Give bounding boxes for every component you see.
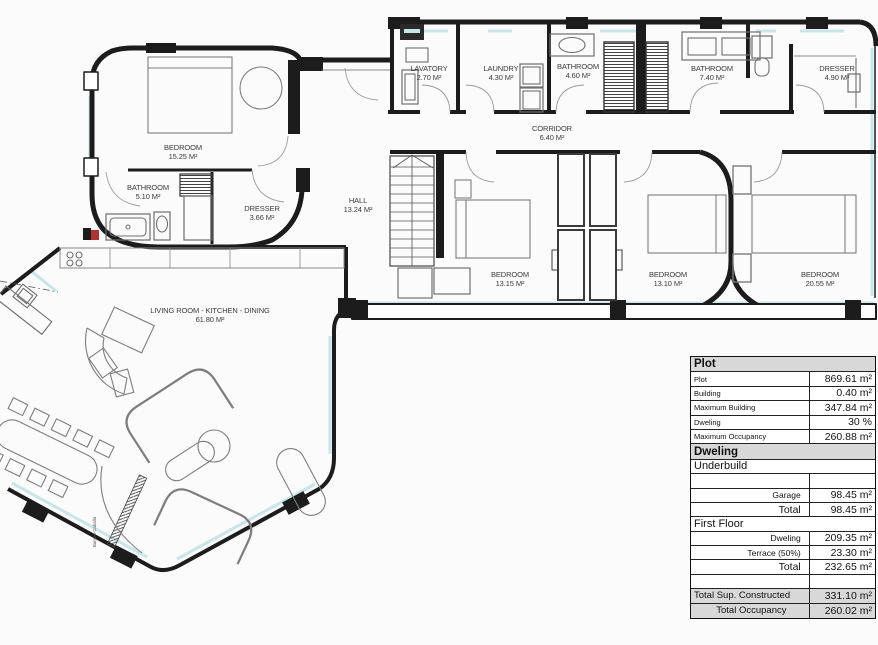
row-label: [691, 474, 809, 487]
room-label: LAUNDRY4.30 M²: [483, 64, 518, 82]
section-label: Plot: [691, 357, 809, 371]
row-value: 232.65 m²: [809, 560, 875, 573]
bed: [148, 57, 232, 133]
bed: [455, 180, 530, 258]
row-label: Total Sup. Constructed: [691, 589, 809, 602]
section-label: Underbuild: [691, 460, 809, 473]
room-label: BATHROOM5.10 M²: [127, 183, 169, 201]
row-label: Total: [691, 503, 809, 516]
row-value: 347.84 m²: [809, 401, 875, 414]
curtain-curve: [101, 466, 142, 553]
svg-text:2.70 M²: 2.70 M²: [417, 73, 442, 82]
row-value: 30 %: [809, 416, 875, 429]
svg-text:15.25 M²: 15.25 M²: [169, 152, 198, 161]
svg-text:61.80 M²: 61.80 M²: [196, 315, 225, 324]
row-value: 0.40 m²: [809, 387, 875, 400]
table-row: Dweling30 %: [691, 416, 875, 430]
room-label: DRESSER4.90 M²: [819, 64, 855, 82]
svg-text:4.90 M²: 4.90 M²: [825, 73, 850, 82]
room-label: BEDROOM13.10 M²: [649, 270, 687, 288]
svg-text:BEDROOM: BEDROOM: [649, 270, 687, 279]
row-label: Dweling: [691, 416, 809, 429]
svg-text:BEDROOM: BEDROOM: [491, 270, 529, 279]
chaise: [161, 430, 230, 485]
table-row: Plot869.61 m²: [691, 372, 875, 386]
boiler-marker: [91, 230, 99, 240]
room-label: BATHROOM4.60 M²: [557, 62, 599, 80]
row-label: Total Occupancy: [691, 604, 809, 618]
staircase: [390, 150, 470, 298]
row-value: 260.88 m²: [809, 430, 875, 443]
room-label: LAVATORY2.70 M²: [410, 64, 447, 82]
table-row: Dweling209.35 m²: [691, 532, 875, 546]
row-label: Garage: [691, 489, 809, 502]
door-arcs-layer: [106, 68, 824, 206]
table-row: Total Occupancy260.02 m²: [691, 604, 875, 618]
svg-text:4.30 M²: 4.30 M²: [489, 73, 514, 82]
table-row: Underbuild: [691, 460, 875, 474]
table-row: Garage98.45 m²: [691, 489, 875, 503]
row-value: 331.10 m²: [809, 589, 875, 602]
row-label: Maximum Occupancy: [691, 430, 809, 443]
row-value: 23.30 m²: [809, 546, 875, 559]
wardrobe: [552, 154, 622, 300]
table-row: Maximum Building347.84 m²: [691, 401, 875, 415]
row-label: Building: [691, 387, 809, 400]
row-label: [691, 575, 809, 588]
row-label: Terrace (50%): [691, 546, 809, 559]
row-value: [809, 474, 875, 487]
table-row: Maximum Occupancy260.88 m²: [691, 430, 875, 444]
table-row: Building0.40 m²: [691, 387, 875, 401]
row-label: Dweling: [691, 532, 809, 545]
row-value: 98.45 m²: [809, 489, 875, 502]
room-label: BEDROOM15.25 M²: [164, 143, 202, 161]
table-row: Plot: [691, 357, 875, 372]
row-label: Maximum Building: [691, 401, 809, 414]
row-label: Plot: [691, 372, 809, 385]
room-label: BEDROOM20.55 M²: [801, 270, 839, 288]
svg-text:LIVING ROOM - KITCHEN - DINING: LIVING ROOM - KITCHEN - DINING: [150, 306, 270, 315]
table-row: First Floor: [691, 517, 875, 531]
svg-text:HALL: HALL: [349, 196, 367, 205]
svg-text:BATHROOM: BATHROOM: [127, 183, 169, 192]
row-value: 98.45 m²: [809, 503, 875, 516]
section-label: Dweling: [691, 444, 809, 458]
table-row: [691, 474, 875, 488]
svg-text:5.10 M²: 5.10 M²: [136, 192, 161, 201]
section-label: First Floor: [691, 517, 809, 530]
svg-text:DRESSER: DRESSER: [244, 204, 280, 213]
svg-text:20.55 M²: 20.55 M²: [806, 279, 835, 288]
dining-table: [0, 398, 114, 508]
table-row: Total98.45 m²: [691, 503, 875, 517]
room-label: BATHROOM7.40 M²: [691, 64, 733, 82]
svg-text:3.66 M²: 3.66 M²: [250, 213, 275, 222]
table-row: Total Sup. Constructed331.10 m²: [691, 589, 875, 603]
table-row: Terrace (50%)23.30 m²: [691, 546, 875, 560]
svg-text:6.40 M²: 6.40 M²: [540, 133, 565, 142]
svg-text:LAUNDRY: LAUNDRY: [483, 64, 518, 73]
table-row: Dweling: [691, 444, 875, 459]
room-label: HALL13.24 M²: [344, 196, 373, 214]
round-table: [240, 67, 282, 109]
area-summary-table: PlotPlot869.61 m²Building0.40 m²Maximum …: [690, 356, 876, 619]
svg-text:DRESSER: DRESSER: [819, 64, 855, 73]
fireplace: [107, 475, 146, 547]
row-value: 260.02 m²: [809, 604, 875, 618]
svg-text:13.15 M²: 13.15 M²: [496, 279, 525, 288]
room-label: DRESSER3.66 M²: [244, 204, 280, 222]
bed: [648, 195, 726, 253]
svg-text:BEDROOM: BEDROOM: [164, 143, 202, 152]
svg-text:7.40 M²: 7.40 M²: [700, 73, 725, 82]
shower-hatch: [646, 42, 668, 112]
shower-hatch: [180, 174, 212, 196]
svg-text:BEDROOM: BEDROOM: [801, 270, 839, 279]
svg-text:13.10 M²: 13.10 M²: [654, 279, 683, 288]
room-label: CORRIDOR6.40 M²: [532, 124, 573, 142]
table-row: Total232.65 m²: [691, 560, 875, 574]
svg-text:BATHROOM: BATHROOM: [557, 62, 599, 71]
table-row: [691, 575, 875, 589]
bed: [733, 166, 856, 282]
row-value: [809, 575, 875, 588]
row-value: 869.61 m²: [809, 372, 875, 385]
svg-text:LAVATORY: LAVATORY: [410, 64, 447, 73]
svg-text:BATHROOM: BATHROOM: [691, 64, 733, 73]
shower-hatch: [604, 42, 634, 112]
svg-text:13.24 M²: 13.24 M²: [344, 205, 373, 214]
room-label: LIVING ROOM - KITCHEN - DINING61.80 M²: [150, 306, 270, 324]
row-value: 209.35 m²: [809, 532, 875, 545]
svg-text:CORRIDOR: CORRIDOR: [532, 124, 573, 133]
vertical-annotation: Bambo-Caballa: [92, 516, 97, 547]
row-label: Total: [691, 560, 809, 573]
sofa: [120, 363, 233, 463]
svg-text:4.60 M²: 4.60 M²: [566, 71, 591, 80]
room-label: BEDROOM13.15 M²: [491, 270, 529, 288]
curved-sofa: [86, 307, 155, 397]
